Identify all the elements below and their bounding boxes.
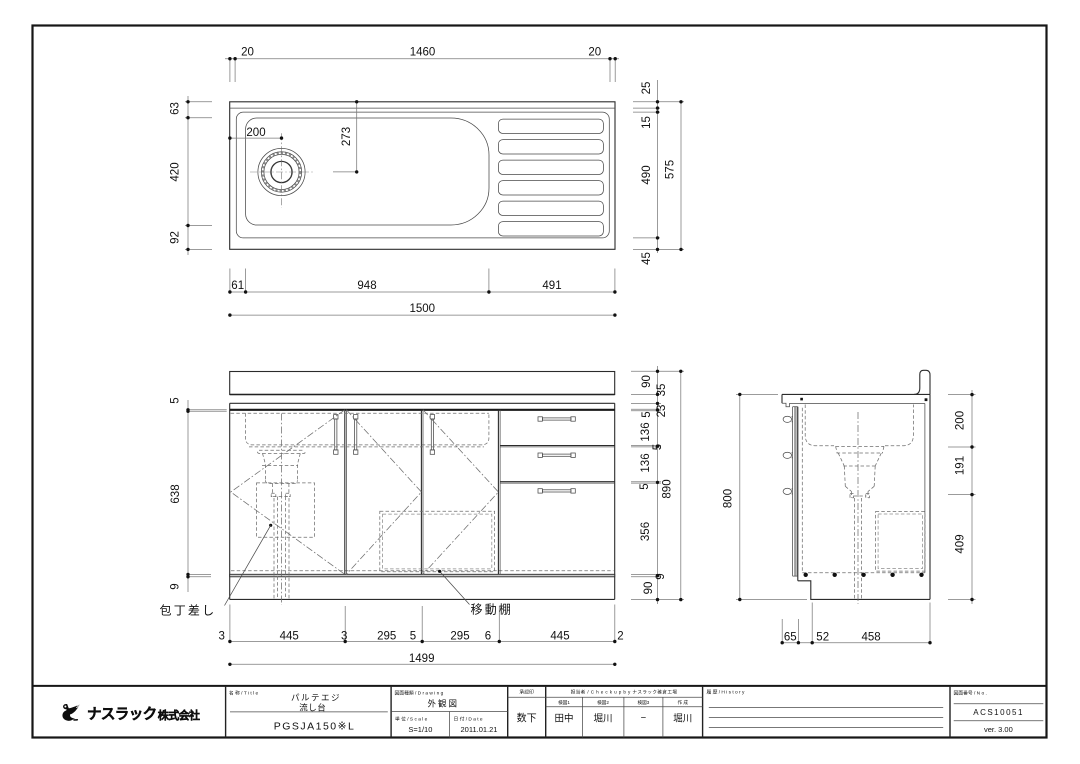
- svg-text:1500: 1500: [410, 303, 436, 315]
- svg-text:52: 52: [816, 631, 829, 643]
- svg-text:流し台: 流し台: [299, 703, 326, 713]
- svg-text:356: 356: [640, 522, 652, 541]
- svg-text:445: 445: [550, 630, 569, 642]
- svg-text:1460: 1460: [410, 47, 436, 59]
- svg-text:履 歴 / H i s t o r y: 履 歴 / H i s t o r y: [707, 690, 745, 696]
- svg-text:包丁差し: 包丁差し: [160, 604, 217, 618]
- svg-text:420: 420: [170, 162, 182, 181]
- svg-text:45: 45: [641, 252, 653, 265]
- svg-text:PGSJA150※L: PGSJA150※L: [274, 721, 356, 733]
- svg-text:外観図: 外観図: [428, 699, 460, 709]
- svg-text:295: 295: [377, 630, 396, 642]
- svg-text:15: 15: [641, 116, 653, 129]
- svg-text:承認印: 承認印: [519, 689, 534, 696]
- svg-text:移動棚: 移動棚: [471, 602, 514, 617]
- svg-text:948: 948: [357, 280, 376, 292]
- svg-text:638: 638: [170, 484, 182, 503]
- svg-text:検図3: 検図3: [638, 699, 650, 706]
- svg-text:800: 800: [723, 489, 735, 508]
- svg-text:図面番号 / N o .: 図面番号 / N o .: [954, 690, 987, 697]
- svg-text:273: 273: [341, 127, 353, 146]
- svg-text:491: 491: [542, 280, 561, 292]
- svg-text:136: 136: [640, 453, 652, 472]
- svg-text:堀川: 堀川: [593, 714, 612, 725]
- svg-text:ナスラック: ナスラック: [87, 706, 157, 723]
- svg-text:3: 3: [341, 630, 347, 642]
- svg-text:25: 25: [641, 82, 653, 95]
- svg-text:490: 490: [641, 165, 653, 184]
- svg-text:ver. 3.00: ver. 3.00: [984, 725, 1013, 734]
- svg-text:作 成: 作 成: [677, 699, 688, 706]
- svg-text:63: 63: [170, 102, 182, 115]
- svg-text:単 位 / S c a l e: 単 位 / S c a l e: [395, 716, 428, 723]
- svg-text:92: 92: [170, 231, 182, 244]
- svg-text:200: 200: [246, 127, 265, 139]
- svg-text:409: 409: [955, 534, 967, 553]
- svg-text:日 付 / D a t e: 日 付 / D a t e: [454, 716, 483, 723]
- svg-text:6: 6: [485, 630, 491, 642]
- svg-text:23: 23: [656, 405, 668, 418]
- svg-text:5: 5: [170, 397, 182, 403]
- svg-text:株式会社: 株式会社: [158, 708, 200, 722]
- svg-text:191: 191: [955, 456, 967, 475]
- svg-text:検図2: 検図2: [597, 699, 609, 706]
- svg-text:35: 35: [656, 384, 668, 397]
- svg-text:575: 575: [665, 160, 677, 179]
- svg-text:9: 9: [170, 583, 182, 589]
- svg-text:1499: 1499: [409, 653, 435, 665]
- svg-text:5: 5: [410, 630, 416, 642]
- svg-text:3: 3: [218, 630, 224, 642]
- svg-text:458: 458: [862, 631, 881, 643]
- svg-text:5: 5: [652, 444, 664, 450]
- svg-text:61: 61: [231, 280, 244, 292]
- svg-text:ACS10051: ACS10051: [973, 708, 1024, 717]
- svg-text:65: 65: [784, 631, 797, 643]
- svg-text:パルテエジ: パルテエジ: [291, 692, 341, 702]
- svg-text:S=1/10: S=1/10: [408, 725, 432, 734]
- svg-text:数下: 数下: [517, 712, 537, 725]
- svg-text:136: 136: [640, 422, 652, 441]
- svg-text:20: 20: [588, 47, 601, 59]
- svg-text:90: 90: [643, 582, 655, 595]
- svg-text:5: 5: [639, 483, 651, 489]
- svg-text:5: 5: [641, 411, 653, 417]
- svg-text:検図1: 検図1: [558, 699, 570, 706]
- svg-text:9: 9: [655, 573, 667, 579]
- svg-text:295: 295: [450, 630, 469, 642]
- svg-text:図面種類 / D r a w i n g: 図面種類 / D r a w i n g: [395, 690, 444, 697]
- svg-text:20: 20: [241, 47, 254, 59]
- svg-text:2: 2: [617, 630, 623, 642]
- svg-text:890: 890: [662, 479, 674, 498]
- svg-text:名 称 / T i t l e: 名 称 / T i t l e: [229, 690, 259, 697]
- svg-text:200: 200: [955, 411, 967, 430]
- svg-text:2011.01.21: 2011.01.21: [461, 725, 498, 734]
- svg-text:担当者 / C h e c k u p b y ナスラ: 担当者 / C h e c k u p b y ナスラック確倉工場: [571, 689, 678, 696]
- svg-text:90: 90: [641, 375, 653, 388]
- svg-text:田中: 田中: [554, 713, 573, 725]
- svg-text:445: 445: [280, 630, 299, 642]
- svg-text:堀川: 堀川: [673, 714, 692, 725]
- svg-text:−: −: [641, 713, 647, 724]
